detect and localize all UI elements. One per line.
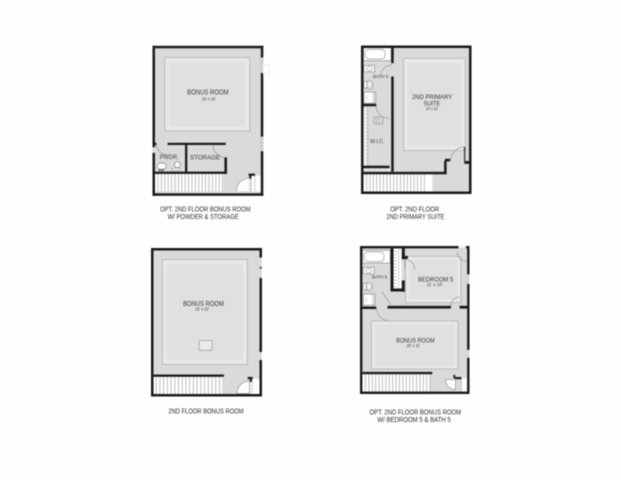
svg-text:11' x 10': 11' x 10' — [427, 282, 443, 287]
svg-text:19' x 11': 19' x 11' — [406, 343, 420, 348]
svg-text:19' x 16': 19' x 16' — [202, 96, 216, 101]
svg-text:BATH 5: BATH 5 — [372, 275, 388, 281]
svg-text:13' x 22': 13' x 22' — [426, 106, 439, 111]
svg-text:2ND FLOOR BONUS ROOM: 2ND FLOOR BONUS ROOM — [168, 408, 243, 416]
svg-text:BONUS ROOM: BONUS ROOM — [187, 88, 229, 97]
svg-text:W/ BEDROOM 5 & BATH 5: W/ BEDROOM 5 & BATH 5 — [377, 416, 450, 424]
svg-text:W/ POWDER & STORAGE: W/ POWDER & STORAGE — [168, 213, 239, 221]
svg-text:W.I.C.: W.I.C. — [370, 139, 385, 145]
svg-text:STORAGE: STORAGE — [190, 155, 221, 162]
svg-text:19' x 22': 19' x 22' — [195, 307, 209, 312]
svg-text:2ND PRIMARY SUITE: 2ND PRIMARY SUITE — [386, 213, 444, 221]
svg-text:PWDR.: PWDR. — [160, 154, 179, 161]
